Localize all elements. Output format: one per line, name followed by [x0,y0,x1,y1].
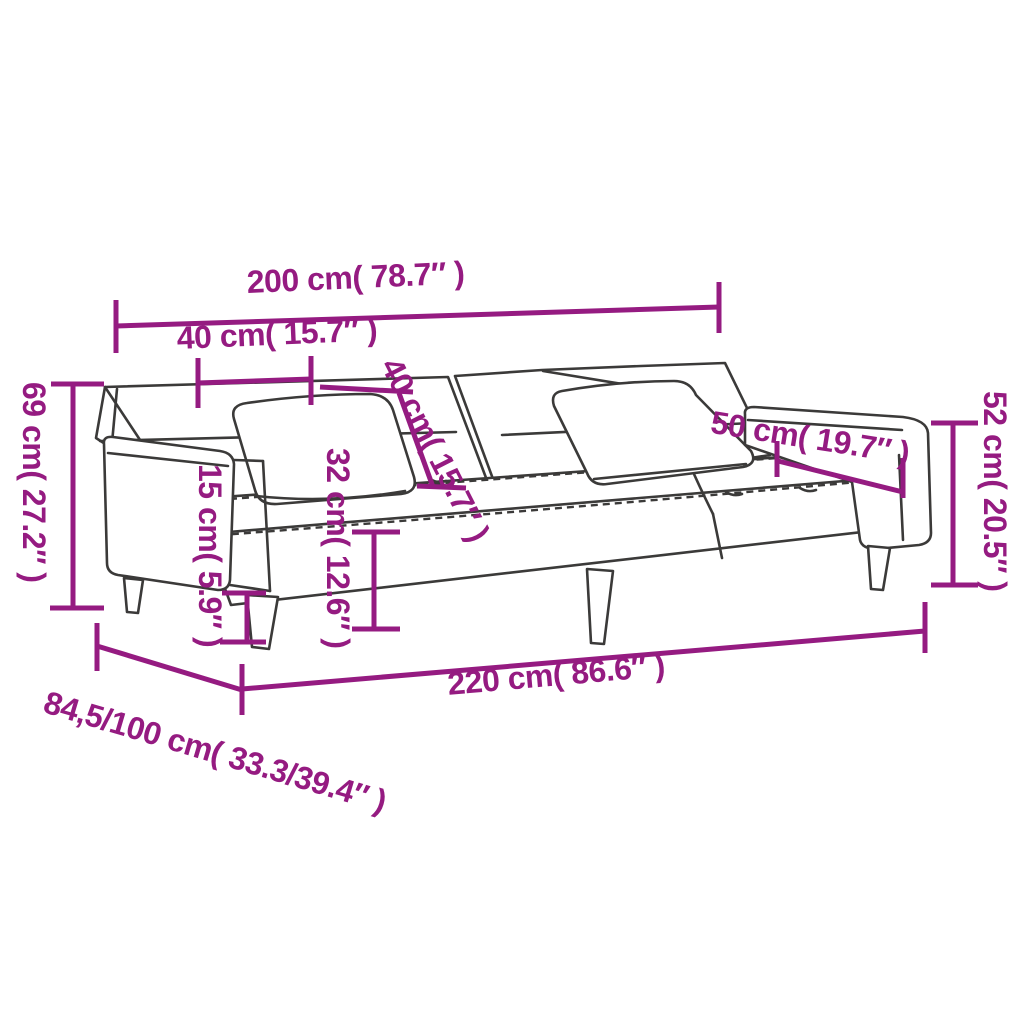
sofa-illustration [0,0,1024,1024]
dimension-label-right-height: 52 cm( 20.5″ ) [976,391,1013,591]
dimension-label-seat-height: 32 cm( 12.6″ ) [319,448,356,648]
dimension-label-left-height: 69 cm( 27.2″ ) [15,382,52,582]
dimension-line-right-height [931,423,978,585]
dimension-line-left-height [50,384,104,608]
diagram-canvas: 200 cm( 78.7″ ) 40 cm( 15.7″ ) 40 cm( 15… [0,0,1024,1024]
dimension-label-leg-height: 15 cm( 5.9″ ) [191,464,228,647]
